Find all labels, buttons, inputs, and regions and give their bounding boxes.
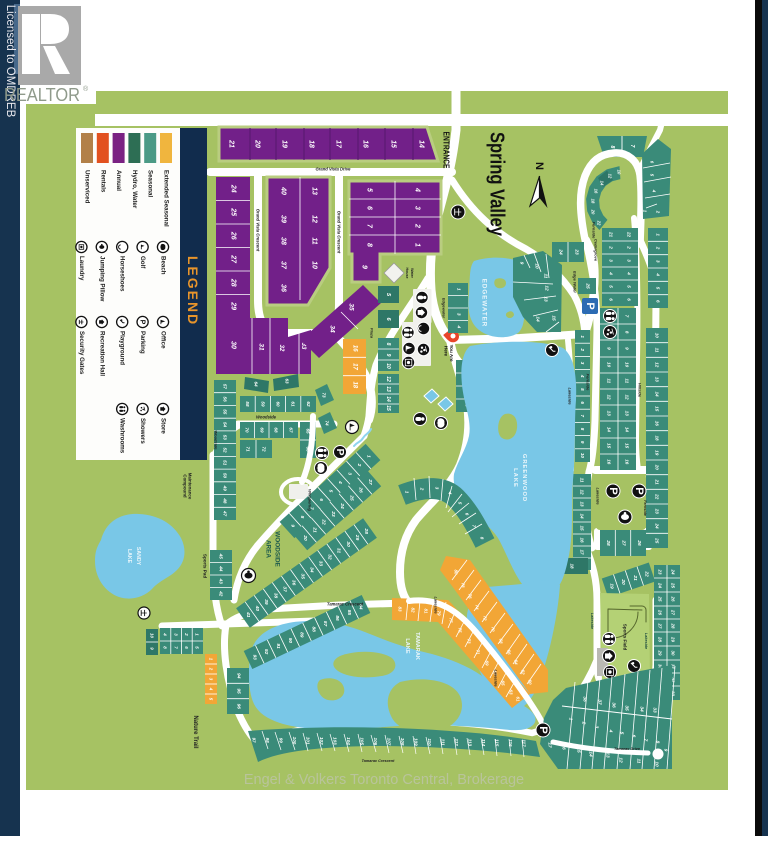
svg-text:1: 1 xyxy=(568,718,574,721)
svg-text:Woodside: Woodside xyxy=(214,430,219,450)
svg-text:GREENWOOD: GREENWOOD xyxy=(521,454,527,502)
svg-text:Security Gates: Security Gates xyxy=(78,331,85,375)
svg-text:5: 5 xyxy=(627,285,632,288)
svg-text:89: 89 xyxy=(299,632,305,638)
svg-text:9: 9 xyxy=(385,354,391,357)
svg-text:11: 11 xyxy=(543,274,549,279)
svg-text:24: 24 xyxy=(655,522,660,529)
svg-text:16: 16 xyxy=(594,189,599,194)
svg-text:39: 39 xyxy=(263,599,269,605)
svg-text:59: 59 xyxy=(260,401,265,407)
svg-text:7: 7 xyxy=(643,739,649,742)
svg-text:48: 48 xyxy=(223,497,228,504)
svg-text:47: 47 xyxy=(223,510,228,517)
svg-text:10: 10 xyxy=(150,633,155,638)
svg-text:P: P xyxy=(537,726,549,734)
svg-text:24: 24 xyxy=(658,582,663,588)
svg-text:22: 22 xyxy=(644,570,650,577)
svg-text:86: 86 xyxy=(334,615,340,621)
svg-text:34: 34 xyxy=(309,567,315,573)
svg-text:6: 6 xyxy=(318,498,324,501)
svg-text:10: 10 xyxy=(580,453,585,459)
svg-text:4: 4 xyxy=(609,271,614,275)
svg-text:28: 28 xyxy=(363,528,369,535)
svg-text:27: 27 xyxy=(658,623,663,629)
svg-text:Rentals: Rentals xyxy=(99,170,106,193)
svg-text:P: P xyxy=(584,302,596,309)
svg-text:1: 1 xyxy=(580,335,585,338)
svg-text:7: 7 xyxy=(580,415,585,418)
svg-text:Cedargrove: Cedargrove xyxy=(594,239,599,262)
svg-text:63: 63 xyxy=(285,378,290,384)
svg-text:36: 36 xyxy=(280,284,287,292)
svg-text:21: 21 xyxy=(311,526,317,533)
svg-text:42: 42 xyxy=(219,590,224,597)
svg-text:68: 68 xyxy=(499,638,504,644)
svg-text:15: 15 xyxy=(625,443,630,449)
svg-text:18: 18 xyxy=(352,381,358,388)
svg-text:36: 36 xyxy=(611,702,617,708)
svg-text:Seasonal: Seasonal xyxy=(147,170,154,197)
svg-text:Water: Water xyxy=(410,268,414,278)
svg-text:29: 29 xyxy=(354,534,360,541)
svg-text:22: 22 xyxy=(321,518,327,525)
svg-text:13: 13 xyxy=(543,296,549,302)
svg-text:28: 28 xyxy=(605,539,611,546)
svg-text:34: 34 xyxy=(639,706,645,712)
svg-text:6: 6 xyxy=(627,298,632,301)
svg-text:87: 87 xyxy=(322,621,328,627)
svg-text:5: 5 xyxy=(619,732,625,735)
svg-text:13: 13 xyxy=(385,386,391,392)
svg-text:11: 11 xyxy=(580,478,585,483)
svg-text:N: N xyxy=(533,162,545,170)
svg-text:Store: Store xyxy=(160,418,167,434)
svg-text:104: 104 xyxy=(346,737,351,745)
svg-text:31: 31 xyxy=(336,548,342,554)
svg-text:Showers: Showers xyxy=(139,418,146,444)
svg-text:22: 22 xyxy=(655,493,660,500)
svg-text:68: 68 xyxy=(274,427,279,433)
svg-text:62: 62 xyxy=(306,401,311,407)
svg-text:10: 10 xyxy=(625,362,630,368)
svg-text:Nature Trail: Nature Trail xyxy=(192,715,198,748)
svg-text:2: 2 xyxy=(581,721,587,725)
svg-text:14: 14 xyxy=(625,427,630,433)
svg-text:82: 82 xyxy=(411,607,416,613)
svg-text:23: 23 xyxy=(330,510,336,517)
svg-text:85: 85 xyxy=(346,610,352,616)
svg-text:69: 69 xyxy=(259,427,264,433)
svg-text:P: P xyxy=(607,487,619,495)
svg-text:Recreation Hall: Recreation Hall xyxy=(98,331,105,376)
svg-text:LAKE: LAKE xyxy=(404,638,410,653)
svg-text:20: 20 xyxy=(620,578,626,585)
svg-text:16: 16 xyxy=(352,345,358,352)
svg-text:35: 35 xyxy=(348,303,355,311)
svg-text:Lakeside: Lakeside xyxy=(434,596,439,614)
svg-text:13: 13 xyxy=(655,377,660,383)
svg-text:9: 9 xyxy=(519,262,525,265)
svg-text:21: 21 xyxy=(632,574,638,581)
svg-text:Edge Water: Edge Water xyxy=(573,271,578,293)
svg-text:24: 24 xyxy=(558,248,564,255)
svg-text:5: 5 xyxy=(328,490,334,493)
svg-text:114: 114 xyxy=(481,739,486,747)
svg-text:25: 25 xyxy=(348,494,354,501)
svg-text:16: 16 xyxy=(655,421,660,427)
svg-text:Whispering: Whispering xyxy=(308,489,313,511)
svg-text:1: 1 xyxy=(414,243,421,247)
svg-text:6: 6 xyxy=(580,401,585,404)
svg-text:60: 60 xyxy=(276,401,281,407)
svg-text:24: 24 xyxy=(339,502,345,509)
svg-text:14: 14 xyxy=(535,316,541,322)
svg-text:2: 2 xyxy=(656,210,661,214)
svg-text:14: 14 xyxy=(385,396,391,402)
svg-text:4: 4 xyxy=(448,491,453,495)
svg-text:113: 113 xyxy=(468,739,473,747)
svg-text:Hydro, Water: Hydro, Water xyxy=(131,170,138,209)
svg-text:2: 2 xyxy=(580,348,585,352)
svg-text:8: 8 xyxy=(299,516,305,519)
svg-text:12: 12 xyxy=(580,489,585,495)
svg-text:1: 1 xyxy=(456,288,462,291)
svg-text:Tamarac Crescent: Tamarac Crescent xyxy=(327,602,364,607)
svg-text:13: 13 xyxy=(311,187,318,195)
svg-text:73: 73 xyxy=(322,392,327,398)
svg-text:5: 5 xyxy=(609,285,614,288)
svg-text:8: 8 xyxy=(385,343,391,346)
svg-text:Washrooms: Washrooms xyxy=(119,418,126,454)
svg-text:6: 6 xyxy=(656,300,661,303)
svg-text:12: 12 xyxy=(608,174,613,179)
svg-text:10: 10 xyxy=(534,263,540,269)
svg-text:99: 99 xyxy=(279,738,284,744)
svg-text:Lakeside: Lakeside xyxy=(644,633,648,649)
svg-text:Edgewater: Edgewater xyxy=(442,298,447,319)
svg-text:35: 35 xyxy=(624,705,630,711)
svg-text:Compound: Compound xyxy=(183,474,188,497)
svg-text:2: 2 xyxy=(627,245,632,249)
svg-text:Horseshoes: Horseshoes xyxy=(119,256,126,292)
svg-text:10: 10 xyxy=(311,261,318,269)
svg-text:1: 1 xyxy=(366,455,372,458)
svg-text:7: 7 xyxy=(472,525,477,528)
svg-text:15: 15 xyxy=(385,405,391,411)
svg-text:95: 95 xyxy=(236,688,242,694)
svg-text:14: 14 xyxy=(588,751,594,757)
svg-text:33: 33 xyxy=(652,707,658,713)
svg-text:71: 71 xyxy=(246,446,251,452)
svg-text:Extended Seasonal: Extended Seasonal xyxy=(163,170,170,227)
svg-text:20: 20 xyxy=(655,464,660,471)
svg-text:3: 3 xyxy=(580,362,585,365)
svg-text:Unserviced: Unserviced xyxy=(84,170,91,204)
svg-text:25: 25 xyxy=(585,282,591,289)
svg-text:LEGEND: LEGEND xyxy=(185,256,201,326)
svg-text:2: 2 xyxy=(609,245,614,249)
svg-text:EDGEWATER: EDGEWATER xyxy=(481,279,488,327)
svg-text:Grand Vista Crescent: Grand Vista Crescent xyxy=(337,211,342,254)
svg-text:9: 9 xyxy=(361,265,368,269)
svg-text:Lakeside: Lakeside xyxy=(596,487,601,505)
svg-text:Grand Vista Drive: Grand Vista Drive xyxy=(316,167,352,172)
svg-text:93: 93 xyxy=(251,655,257,661)
svg-text:Tamarac Drive: Tamarac Drive xyxy=(614,747,640,751)
svg-text:Sports Pad: Sports Pad xyxy=(203,554,208,578)
svg-text:61: 61 xyxy=(516,696,521,702)
svg-text:37: 37 xyxy=(281,586,287,592)
svg-text:12: 12 xyxy=(618,757,624,763)
svg-text:AREA: AREA xyxy=(265,540,272,558)
svg-text:Beach: Beach xyxy=(160,256,167,275)
svg-text:19: 19 xyxy=(655,450,660,456)
svg-text:33: 33 xyxy=(318,561,324,567)
svg-text:44: 44 xyxy=(219,565,224,572)
svg-text:36: 36 xyxy=(290,580,296,586)
svg-text:27: 27 xyxy=(367,478,373,485)
svg-text:19: 19 xyxy=(281,140,288,148)
svg-text:Tamarac Crescent: Tamarac Crescent xyxy=(362,759,396,763)
svg-text:23: 23 xyxy=(655,508,660,515)
svg-text:50: 50 xyxy=(223,473,228,479)
svg-text:30: 30 xyxy=(671,651,676,656)
svg-text:9: 9 xyxy=(289,524,295,527)
svg-text:Office: Office xyxy=(160,331,167,349)
svg-text:16: 16 xyxy=(607,459,612,465)
svg-text:26: 26 xyxy=(671,596,676,602)
svg-text:You Are: You Are xyxy=(449,344,454,362)
svg-text:26: 26 xyxy=(636,539,642,546)
svg-text:100: 100 xyxy=(292,737,297,745)
svg-text:16: 16 xyxy=(625,459,630,465)
svg-text:38: 38 xyxy=(280,237,287,245)
svg-text:18: 18 xyxy=(570,563,575,569)
svg-text:SANDY: SANDY xyxy=(135,547,141,566)
svg-text:12: 12 xyxy=(607,394,612,400)
svg-text:109: 109 xyxy=(414,738,419,746)
svg-text:8: 8 xyxy=(609,146,615,149)
svg-text:72: 72 xyxy=(262,446,267,452)
svg-text:8: 8 xyxy=(625,331,630,334)
svg-text:Lakeside: Lakeside xyxy=(568,387,573,405)
svg-text:2: 2 xyxy=(656,246,661,250)
svg-text:10: 10 xyxy=(607,362,612,368)
svg-text:2: 2 xyxy=(356,463,362,467)
svg-text:9: 9 xyxy=(607,347,612,350)
svg-text:4: 4 xyxy=(656,272,661,276)
svg-text:5: 5 xyxy=(458,502,463,505)
svg-text:98: 98 xyxy=(265,738,270,744)
svg-text:17: 17 xyxy=(335,140,342,149)
svg-text:34: 34 xyxy=(329,325,336,333)
svg-text:20: 20 xyxy=(591,209,596,215)
svg-text:9: 9 xyxy=(663,749,669,752)
svg-text:11: 11 xyxy=(655,348,660,353)
svg-text:Jumping Pillow: Jumping Pillow xyxy=(98,256,105,302)
svg-text:Grand Vista Crescent: Grand Vista Crescent xyxy=(256,209,261,252)
svg-text:41: 41 xyxy=(245,611,251,618)
svg-text:102: 102 xyxy=(319,737,324,745)
svg-text:1: 1 xyxy=(405,491,410,494)
svg-text:Here: Here xyxy=(444,346,449,357)
svg-text:81: 81 xyxy=(424,608,429,614)
svg-text:26: 26 xyxy=(230,231,237,240)
svg-text:Engel & Volkers Toronto Centra: Engel & Volkers Toronto Central, Brokera… xyxy=(244,772,524,788)
svg-text:21: 21 xyxy=(609,231,614,238)
svg-text:P: P xyxy=(139,320,147,325)
svg-text:4: 4 xyxy=(608,729,614,733)
svg-text:23: 23 xyxy=(574,248,580,255)
svg-text:18: 18 xyxy=(591,199,596,204)
svg-text:Spring Valley: Spring Valley xyxy=(486,132,509,236)
svg-text:15: 15 xyxy=(580,525,585,531)
svg-text:13: 13 xyxy=(625,411,630,417)
svg-text:LAKE: LAKE xyxy=(512,468,518,488)
svg-text:53: 53 xyxy=(223,435,228,441)
svg-text:49: 49 xyxy=(223,485,228,492)
svg-text:70: 70 xyxy=(245,427,250,433)
svg-text:20: 20 xyxy=(302,534,308,541)
svg-text:83: 83 xyxy=(398,606,403,612)
svg-text:5: 5 xyxy=(656,287,661,290)
svg-text:9: 9 xyxy=(625,347,630,350)
svg-text:54: 54 xyxy=(223,422,228,428)
svg-text:5: 5 xyxy=(366,188,373,192)
svg-text:97: 97 xyxy=(252,737,257,743)
svg-text:14: 14 xyxy=(655,391,660,397)
svg-text:27: 27 xyxy=(671,609,676,615)
svg-text:Annual: Annual xyxy=(115,170,122,191)
svg-text:24: 24 xyxy=(230,184,237,193)
svg-text:17: 17 xyxy=(580,549,585,555)
svg-text:28: 28 xyxy=(230,278,237,287)
svg-text:Sports Field: Sports Field xyxy=(623,624,628,651)
svg-text:14: 14 xyxy=(607,427,612,433)
svg-text:12: 12 xyxy=(385,376,391,382)
svg-text:2: 2 xyxy=(184,632,189,636)
svg-text:13: 13 xyxy=(607,411,612,417)
svg-text:101: 101 xyxy=(306,737,311,745)
svg-text:12: 12 xyxy=(544,285,550,291)
svg-text:17: 17 xyxy=(352,363,358,370)
svg-text:18: 18 xyxy=(655,435,660,441)
svg-text:14: 14 xyxy=(600,181,605,186)
svg-text:32: 32 xyxy=(327,554,333,560)
svg-text:ENTRANCE: ENTRANCE xyxy=(442,132,451,170)
svg-text:15: 15 xyxy=(607,443,612,449)
svg-text:Lakeside: Lakeside xyxy=(494,669,499,687)
svg-text:38: 38 xyxy=(272,593,278,599)
svg-text:16: 16 xyxy=(362,140,369,148)
svg-text:10: 10 xyxy=(385,363,391,369)
svg-text:4: 4 xyxy=(580,374,585,378)
svg-text:31: 31 xyxy=(258,343,265,351)
svg-text:40: 40 xyxy=(280,186,287,195)
svg-text:Parking: Parking xyxy=(139,331,146,354)
svg-text:61: 61 xyxy=(291,401,296,407)
svg-text:30: 30 xyxy=(345,541,351,547)
svg-text:Fernside: Fernside xyxy=(643,500,647,516)
svg-text:90: 90 xyxy=(287,638,293,644)
svg-text:16: 16 xyxy=(580,537,585,543)
svg-text:29: 29 xyxy=(658,650,663,656)
svg-text:39: 39 xyxy=(280,215,287,223)
svg-text:3: 3 xyxy=(609,259,614,262)
svg-text:26: 26 xyxy=(658,609,663,615)
svg-text:25: 25 xyxy=(671,582,676,588)
svg-text:110: 110 xyxy=(427,738,432,746)
svg-text:38: 38 xyxy=(582,696,588,702)
svg-text:20: 20 xyxy=(254,139,261,148)
svg-text:25: 25 xyxy=(658,596,663,602)
svg-text:8: 8 xyxy=(655,741,661,744)
svg-text:56: 56 xyxy=(223,397,228,403)
svg-text:Playground: Playground xyxy=(119,331,126,365)
svg-text:19: 19 xyxy=(608,583,614,589)
svg-text:7: 7 xyxy=(625,315,630,318)
svg-text:21: 21 xyxy=(655,478,660,485)
svg-text:2: 2 xyxy=(420,487,425,491)
svg-text:51: 51 xyxy=(223,460,228,466)
svg-text:35: 35 xyxy=(300,574,306,580)
svg-text:55: 55 xyxy=(223,409,228,415)
svg-text:37: 37 xyxy=(597,699,603,705)
svg-text:3: 3 xyxy=(627,259,632,262)
svg-text:3: 3 xyxy=(594,726,600,729)
svg-text:6: 6 xyxy=(609,298,614,301)
svg-text:®: ® xyxy=(83,85,89,93)
svg-text:Lakeside: Lakeside xyxy=(590,613,594,629)
svg-text:28: 28 xyxy=(658,636,663,642)
svg-text:67: 67 xyxy=(288,427,293,433)
svg-text:1: 1 xyxy=(656,233,661,236)
svg-text:106: 106 xyxy=(373,738,378,746)
svg-text:112: 112 xyxy=(454,739,459,747)
svg-text:3: 3 xyxy=(347,472,353,475)
svg-text:Plaza: Plaza xyxy=(370,328,375,339)
svg-text:14: 14 xyxy=(580,513,585,519)
svg-text:92: 92 xyxy=(263,649,269,655)
svg-text:Hillside: Hillside xyxy=(638,383,643,398)
svg-text:108: 108 xyxy=(400,738,405,746)
svg-text:Fernside: Fernside xyxy=(592,222,597,239)
svg-text:Fernside: Fernside xyxy=(586,374,591,391)
svg-text:3: 3 xyxy=(656,260,661,263)
svg-text:25: 25 xyxy=(230,207,237,216)
svg-text:11: 11 xyxy=(607,378,612,383)
svg-text:37: 37 xyxy=(280,261,287,270)
svg-text:29: 29 xyxy=(671,636,676,642)
svg-text:3: 3 xyxy=(456,313,462,316)
svg-text:LAKE: LAKE xyxy=(126,549,132,564)
svg-text:96: 96 xyxy=(236,704,242,710)
svg-text:63: 63 xyxy=(509,689,514,695)
svg-text:111: 111 xyxy=(441,739,446,746)
svg-text:103: 103 xyxy=(333,737,338,745)
svg-text:P: P xyxy=(334,448,346,455)
svg-text:15: 15 xyxy=(551,315,557,321)
svg-text:6: 6 xyxy=(465,513,470,516)
svg-text:4: 4 xyxy=(652,189,657,193)
svg-text:117: 117 xyxy=(522,739,527,747)
svg-text:13: 13 xyxy=(580,501,585,507)
svg-text:8: 8 xyxy=(480,537,485,540)
svg-text:91: 91 xyxy=(275,643,281,649)
svg-text:25: 25 xyxy=(655,537,660,544)
svg-text:27: 27 xyxy=(230,254,237,264)
